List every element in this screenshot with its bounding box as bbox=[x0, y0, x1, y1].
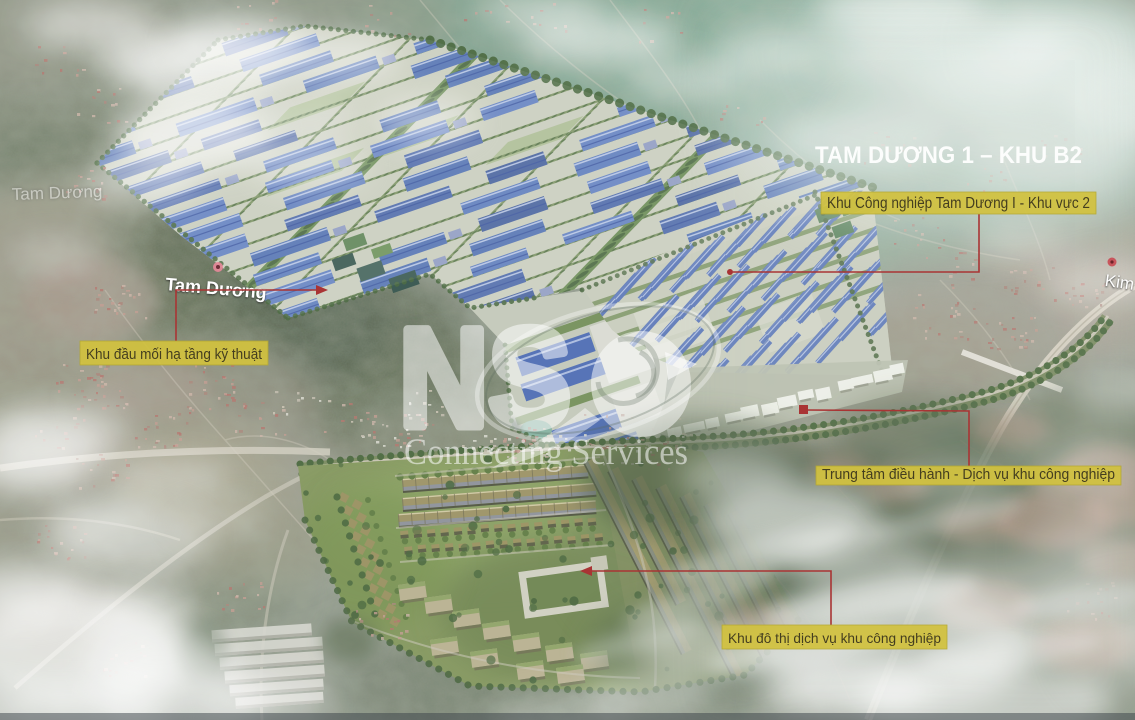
svg-text:TAM DƯƠNG 1 – KHU B2: TAM DƯƠNG 1 – KHU B2 bbox=[815, 142, 1082, 169]
svg-text:Trung tâm điều hành - Dịch vụ: Trung tâm điều hành - Dịch vụ khu công n… bbox=[822, 467, 1115, 483]
svg-text:Tam Dương: Tam Dương bbox=[11, 182, 102, 204]
svg-text:Connecting Services: Connecting Services bbox=[404, 432, 688, 473]
svg-text:Khu đô thị dịch vụ khu công ng: Khu đô thị dịch vụ khu công nghiệp bbox=[728, 630, 941, 646]
svg-text:Khu Công nghiệp Tam Dương I -: Khu Công nghiệp Tam Dương I - Khu vực 2 bbox=[827, 195, 1090, 212]
svg-text:Khu đầu mối hạ tầng kỹ thuật: Khu đầu mối hạ tầng kỹ thuật bbox=[86, 347, 262, 363]
svg-text:Kim: Kim bbox=[1104, 271, 1135, 294]
